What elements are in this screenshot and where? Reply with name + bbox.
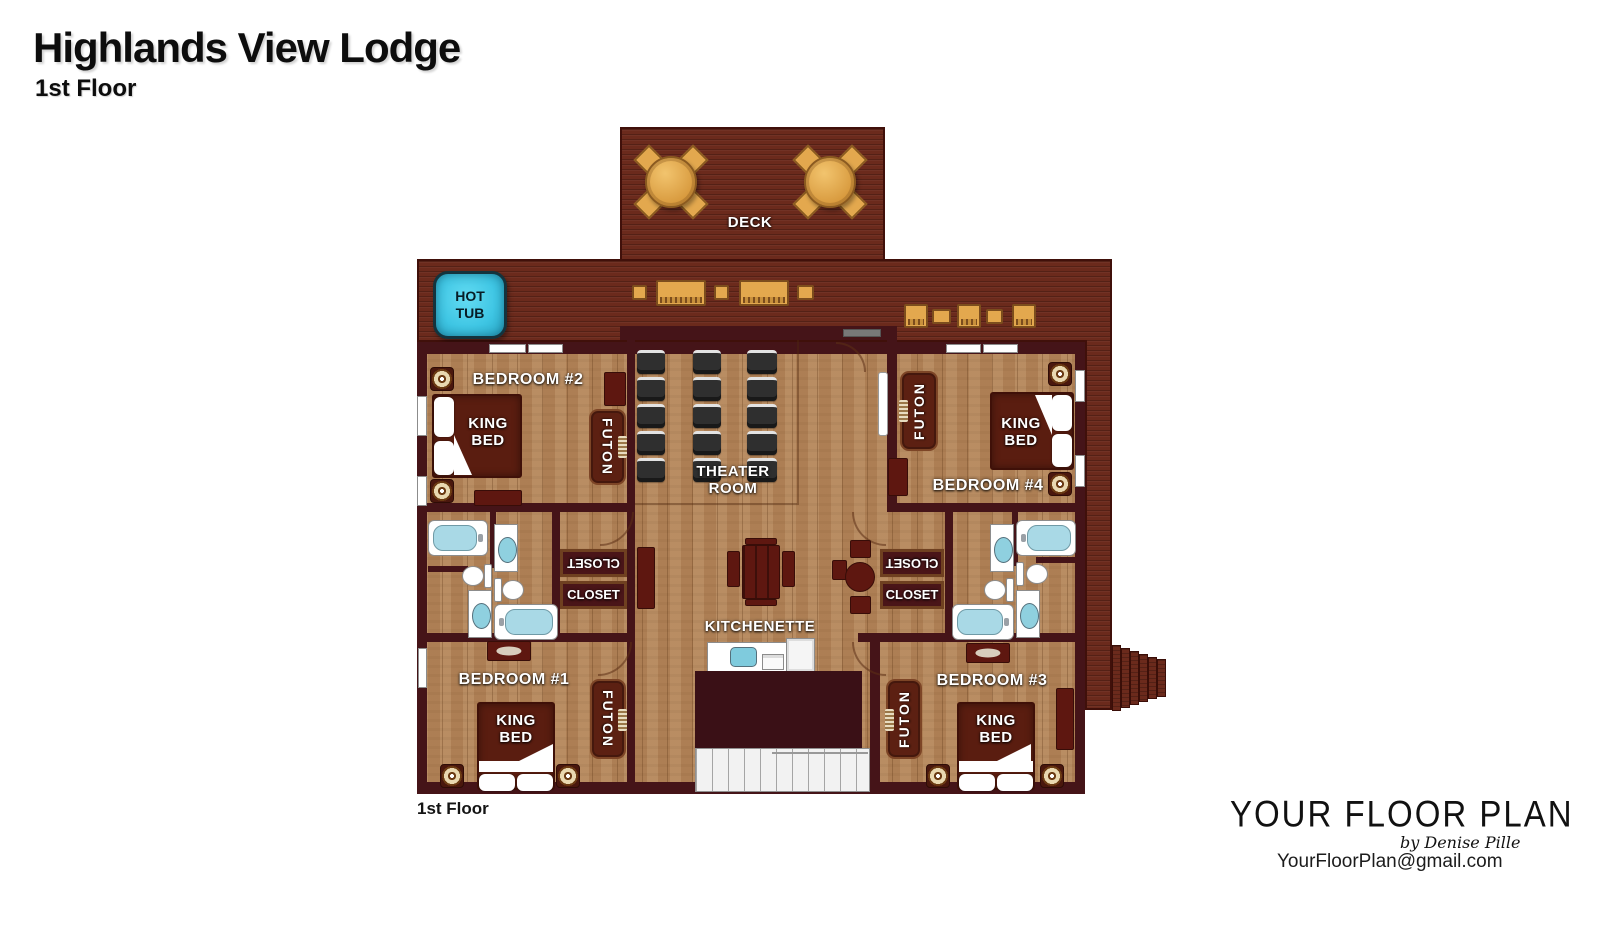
sink-counter [494,524,518,572]
bedroom4-label: BEDROOM #4 [918,478,1058,494]
cafe-chair [850,540,871,558]
bathtub [494,604,558,640]
open-below-void [695,671,862,748]
sink-counter [990,524,1014,572]
mini-fridge [786,638,815,672]
closet-label: CLOSET [563,552,624,574]
theater-seat [637,350,665,374]
theater-screen [843,329,881,337]
hot-tub: HOT TUB [433,271,507,339]
patio-round-table [804,156,856,208]
lamp-icon [431,480,453,502]
faucet-icon [499,618,504,626]
bedroom2-label: BEDROOM #2 [458,372,598,388]
futon-label: FUTON [600,418,616,476]
patio-round-table [645,156,697,208]
deck-loveseat [739,280,789,306]
patio-table-set [795,147,865,217]
dining-bench [745,538,777,545]
bathtub-water [505,609,553,635]
window [1075,370,1085,402]
nightstand [430,367,454,391]
window [489,344,526,353]
futon-bedroom4: FUTON [900,371,938,451]
futon-label: FUTON [896,690,912,748]
pillow [1052,434,1072,467]
futon-bedroom3: FUTON [886,679,922,759]
bedroom3-label: BEDROOM #3 [922,673,1062,689]
futon-arm [618,436,627,458]
window [528,344,563,353]
patio-table-set [636,147,706,217]
toilet-bowl [502,580,524,600]
sink-bowl [994,537,1013,563]
stair-step [1112,645,1121,711]
lamp-icon [557,765,579,787]
futon-bedroom1: FUTON [590,679,626,759]
closet-label: CLOSET [563,584,624,606]
futon-label: FUTON [600,690,616,748]
futon-arm [618,709,627,731]
theater-seat [747,404,777,428]
theater-seat [637,458,665,482]
bedroom1-label: BEDROOM #1 [444,672,584,688]
rug [888,458,908,496]
sink-bowl [1020,603,1039,629]
window [417,476,427,506]
wall-bath-right-partition [1036,557,1076,563]
bathtub-water [957,609,1003,635]
theater-seat [637,377,665,401]
toilet-tank [494,578,502,602]
window [417,396,427,436]
tv-console [604,372,626,406]
lamp-icon [1049,363,1071,385]
logo-byline: by Denise Pille [1400,833,1520,852]
rug [474,490,522,506]
deck-loveseat [656,280,706,306]
lamp-icon [1041,765,1063,787]
loveseat-back [660,297,702,303]
stair-step [1157,659,1166,697]
pillow [434,397,454,437]
pillow [959,774,995,791]
deck-side-table [986,309,1003,324]
king-bed-label: KING BED [480,711,552,747]
nightstand [1040,764,1064,788]
cafe-chair [850,596,871,614]
sink-counter [468,590,492,638]
sink-counter [1016,590,1040,638]
theater-seat [693,377,721,401]
lamp-icon [1049,473,1071,495]
theater-seat [747,377,777,401]
tv-screen [496,647,521,656]
dining-chair [782,551,795,587]
theater-seat [693,404,721,428]
wall-tv [878,372,888,436]
theater-seat [693,350,721,374]
toilet-tank [1016,562,1024,586]
bathtub-water [1027,525,1071,551]
faucet-icon [1004,618,1009,626]
nightstand [1048,472,1072,496]
chair-back [961,319,977,325]
toilet-bowl [1026,564,1048,584]
stair-step [1121,648,1130,708]
closet: CLOSET [560,549,627,577]
nightstand [440,764,464,788]
deck-side-table [932,309,951,324]
pillow [434,441,454,475]
floor-plan-page: Highlands View Lodge 1st Floor DECK [0,0,1599,933]
tv-console [966,643,1010,663]
window [1075,455,1085,487]
interior-staircase [695,748,870,792]
futon-arm [899,400,908,422]
dining-table [742,545,780,599]
toilet-bowl [984,580,1006,600]
loveseat-back [743,297,785,303]
nightstand [926,764,950,788]
lamp-icon [441,765,463,787]
tv-console [487,641,531,661]
futon-label: FUTON [911,382,927,440]
toilet-tank [484,564,492,588]
faucet-icon [478,534,483,542]
hot-tub-label: HOT TUB [455,288,485,322]
toilet-tank [1006,578,1014,602]
theater-seat [747,350,777,374]
exterior-stairs-right [1112,646,1166,710]
tv-screen [975,649,1000,658]
theater-seat [693,431,721,455]
deck-chair [957,304,981,328]
closet: CLOSET [560,581,627,609]
closet-label: CLOSET [883,584,941,606]
pillow [517,774,553,791]
stair-step [1148,657,1157,699]
logo-text: YOUR FLOOR PLAN [1230,793,1574,836]
nightstand [430,479,454,503]
chair-back [908,319,924,325]
kitchenette-label: KITCHENETTE [690,619,830,634]
bathtub-water [433,525,477,551]
closet-label: CLOSET [883,552,941,574]
theater-seat [747,431,777,455]
bathtub [952,604,1014,640]
theater-seat [637,431,665,455]
nightstand [1048,362,1072,386]
bed-fold-strip [479,761,553,772]
theater-room-label: THEATER ROOM [673,463,793,497]
king-bed-label: KING BED [456,414,520,450]
wall-center-left [627,326,635,793]
futon-arm [885,709,894,731]
deck-chair [904,304,928,328]
closet: CLOSET [880,549,944,577]
pillow [479,774,515,791]
page-title: Highlands View Lodge [33,24,460,72]
page-subtitle: 1st Floor [35,75,136,103]
console-table [637,547,655,609]
stair-rail [772,752,868,754]
deck-label: DECK [689,214,811,231]
kitchen-sink [730,647,757,667]
deck-side-table [797,285,814,300]
bathtub [1016,520,1076,556]
wall-right [1075,342,1085,794]
lamp-icon [927,765,949,787]
deck-side-table [714,285,729,300]
toilet-bowl [462,566,484,586]
floor-caption: 1st Floor [417,799,489,819]
dresser [1056,688,1074,750]
logo-email: YourFloorPlan@gmail.com [1277,851,1503,873]
pillow [1052,395,1072,431]
stair-step [1130,651,1139,705]
dishwasher [762,654,784,670]
faucet-icon [1021,534,1026,542]
nightstand [556,764,580,788]
wall-bedroom2-bottom [417,503,635,512]
bathtub [428,520,488,556]
futon-bedroom2: FUTON [589,409,626,485]
bed-fold-strip [959,761,1033,772]
pillow [997,774,1033,791]
lamp-icon [431,368,453,390]
sink-bowl [472,603,491,629]
dining-bench [745,599,777,606]
deck-side-table [632,285,647,300]
chair-back [1016,319,1032,325]
deck-chair [1012,304,1036,328]
window [418,648,427,688]
window [946,344,981,353]
cafe-round-table [845,562,875,592]
king-bed-label: KING BED [960,711,1032,747]
sink-bowl [498,537,517,563]
theater-seat [637,404,665,428]
window [983,344,1018,353]
stair-step [1139,654,1148,702]
deck-right-strip [1085,340,1112,710]
wall-bedroom4-bottom [887,503,1085,512]
king-bed-label: KING BED [988,414,1054,450]
closet: CLOSET [880,581,944,609]
dining-chair [727,551,740,587]
